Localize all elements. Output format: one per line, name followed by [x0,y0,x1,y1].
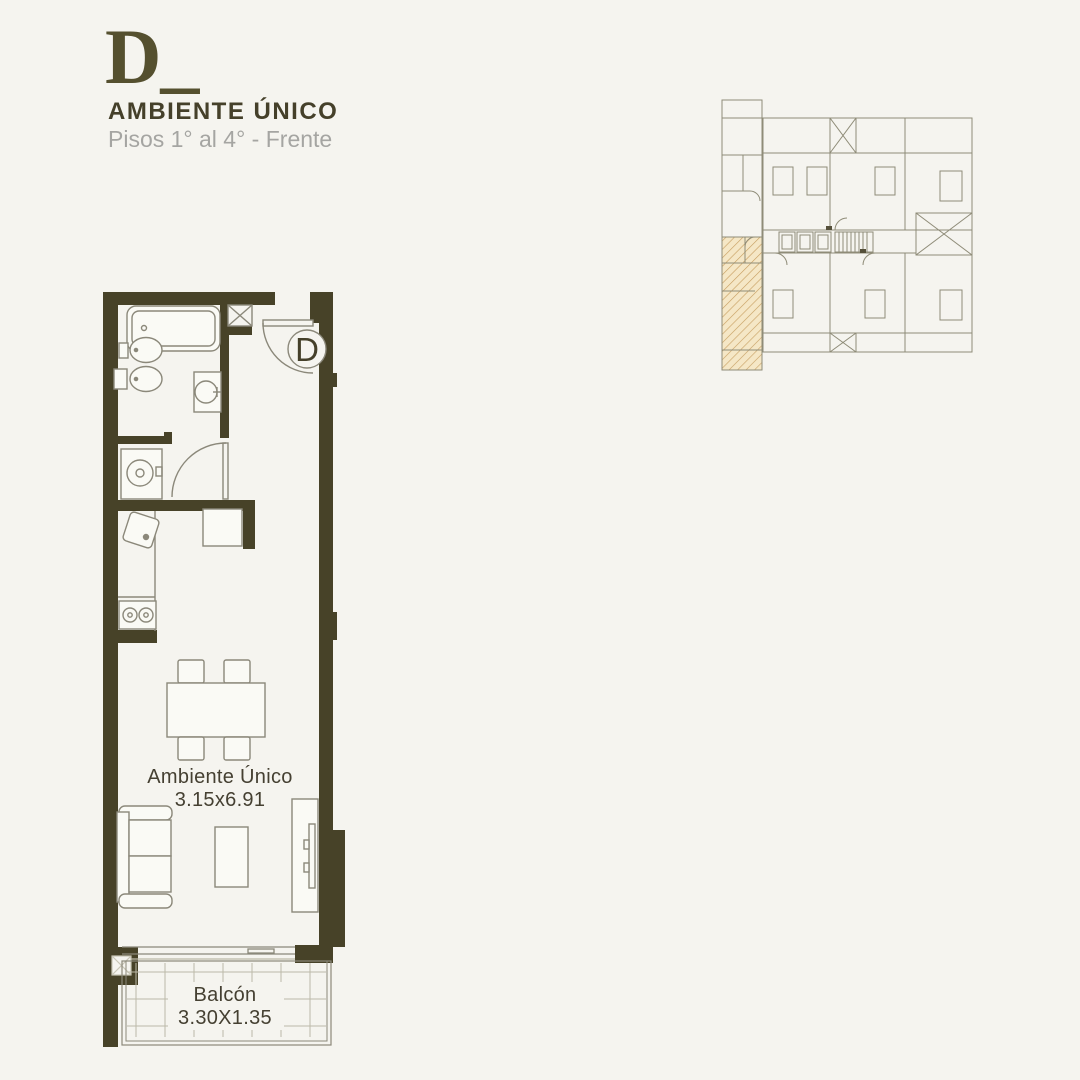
chair [224,660,250,683]
kitchen-sink [122,511,160,549]
bidet [119,343,128,358]
toilet-tank [114,369,127,389]
tv [309,824,315,888]
main-room-dimensions: 3.15x6.91 [175,789,266,811]
sofa-seat [129,820,171,856]
main-room-name: Ambiente Único [147,765,292,788]
bathroom-door-arc [172,443,226,497]
air-shaft [228,305,252,326]
chair [178,660,204,683]
living-furniture [117,799,318,912]
dining-set [167,660,265,760]
chair [224,737,250,760]
page-title: AMBIENTE ÚNICO [108,98,338,126]
sofa-seat [129,856,171,892]
key-plan [715,95,980,380]
chair [178,737,204,760]
plan-letter-logo: D_ [105,18,198,96]
bathroom-door-leaf [223,443,228,499]
coffee-table [215,827,248,887]
dining-table [167,683,265,737]
fridge [203,509,242,546]
sofa-armrest [119,894,172,908]
kitchen [118,509,242,631]
balcony-name: Balcón [194,984,257,1006]
balcony: Balcón 3.30X1.35 [122,961,331,1045]
page-subtitle: Pisos 1° al 4° - Frente [108,126,332,153]
balcony-dimensions: 3.30X1.35 [178,1007,272,1029]
floor-plan-sheet: D_ AMBIENTE ÚNICO Pisos 1° al 4° - Frent… [0,0,1080,1080]
unit-floor-plan: D [95,285,355,1055]
entry-unit-label: D [295,331,319,368]
sofa-back [117,812,129,902]
balcony-window [122,947,295,959]
laundry [121,449,162,499]
